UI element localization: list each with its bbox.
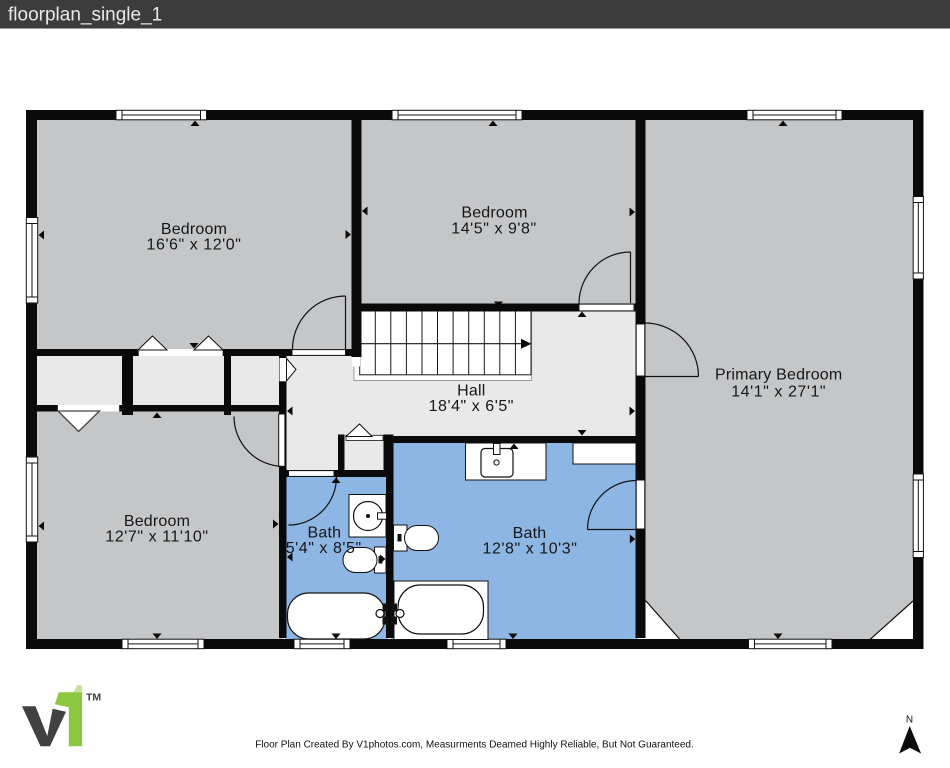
svg-text:Bath: Bath <box>308 525 342 542</box>
svg-text:Floor Plan Created By V1photos: Floor Plan Created By V1photos.com, Meas… <box>255 740 694 751</box>
svg-text:5'4" x 8'5": 5'4" x 8'5" <box>286 540 362 557</box>
svg-text:12'7" x 11'10": 12'7" x 11'10" <box>105 529 208 546</box>
svg-text:Bedroom: Bedroom <box>124 513 190 530</box>
svg-text:Bath: Bath <box>513 525 547 542</box>
svg-text:18'4" x 6'5": 18'4" x 6'5" <box>429 398 514 415</box>
svg-text:Bedroom: Bedroom <box>461 205 527 222</box>
svg-text:Primary Bedroom: Primary Bedroom <box>715 366 842 383</box>
svg-text:TM: TM <box>86 692 101 704</box>
svg-text:12'8" x 10'3": 12'8" x 10'3" <box>483 541 578 558</box>
svg-text:14'5" x 9'8": 14'5" x 9'8" <box>451 221 536 238</box>
svg-text:14'1" x 27'1": 14'1" x 27'1" <box>731 384 826 401</box>
svg-text:16'6" x 12'0": 16'6" x 12'0" <box>147 237 242 254</box>
svg-text:N: N <box>906 715 913 726</box>
svg-text:floorplan_single_1: floorplan_single_1 <box>8 5 162 26</box>
